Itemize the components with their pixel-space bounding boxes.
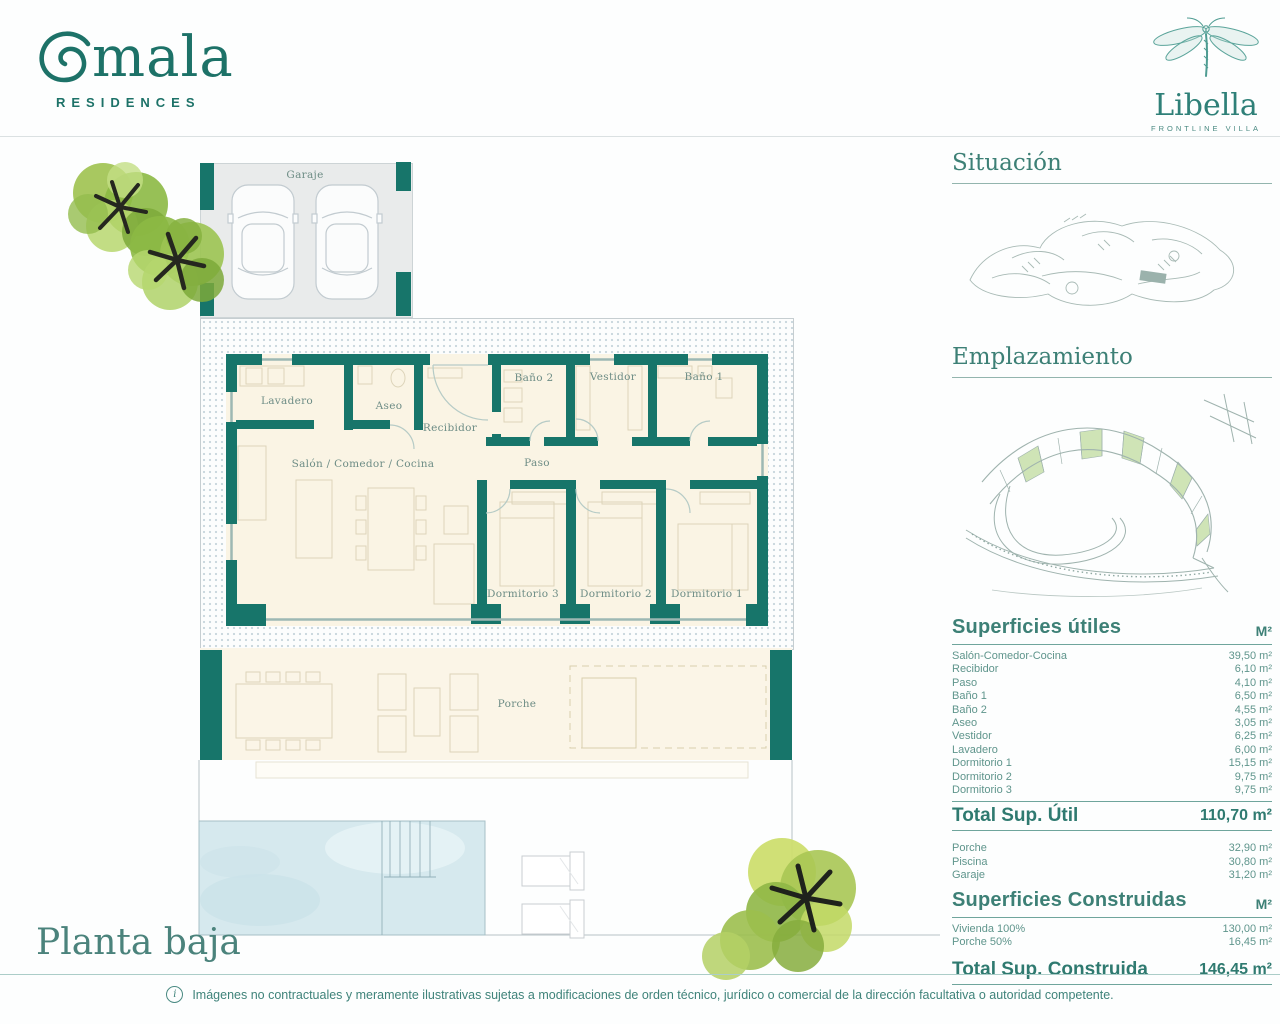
table-row: Salón-Comedor-Cocina39,50 m² — [952, 650, 1272, 663]
emplazamiento-map — [952, 382, 1272, 604]
superficies-anexas-rows: Porche32,90 m² Piscina30,80 m² Garaje31,… — [952, 837, 1272, 886]
superficies-utiles-header: Superficies útiles M² — [952, 616, 1272, 645]
room-label-dormitorio-2: Dormitorio 2 — [580, 588, 652, 600]
total-util-row: Total Sup. Útil 110,70 m² — [952, 801, 1272, 831]
table-row: Dormitorio 29,75 m² — [952, 771, 1272, 784]
table-row: Baño 16,50 m² — [952, 690, 1272, 703]
superficies-utiles-rows: Salón-Comedor-Cocina39,50 m² Recibidor6,… — [952, 645, 1272, 801]
plan-title: Planta baja — [36, 922, 241, 963]
omala-o-spiral-icon — [34, 24, 96, 91]
situacion-map — [952, 188, 1272, 338]
room-label-porche: Porche — [498, 698, 537, 710]
info-icon: i — [166, 986, 183, 1003]
garage-area — [200, 163, 413, 318]
footer-divider — [0, 974, 1280, 975]
table-row: Dormitorio 39,75 m² — [952, 784, 1272, 797]
superficies-utiles-unit: M² — [1256, 623, 1272, 639]
room-label-garaje: Garaje — [286, 169, 323, 181]
villa-subtitle: FRONTLINE VILLA — [1128, 124, 1280, 133]
table-row: Aseo3,05 m² — [952, 717, 1272, 730]
brochure-page: { "brand": {"name": "Omala", "name_rest"… — [0, 0, 1280, 1024]
table-row: Porche32,90 m² — [952, 842, 1272, 855]
pool — [199, 821, 485, 935]
header-divider — [0, 136, 1280, 137]
table-row: Dormitorio 115,15 m² — [952, 757, 1272, 770]
room-label-bano-1: Baño 1 — [685, 371, 724, 383]
room-label-vestidor: Vestidor — [590, 371, 636, 383]
table-row: Vivienda 100%130,00 m² — [952, 923, 1272, 936]
room-label-recibidor: Recibidor — [423, 422, 477, 434]
libella-logo: Libella FRONTLINE VILLA — [1128, 8, 1280, 133]
brand-residences: RESIDENCES — [56, 95, 234, 110]
table-row: Recibidor6,10 m² — [952, 663, 1272, 676]
table-row: Paso4,10 m² — [952, 677, 1272, 690]
superficies-construidas-rows: Vivienda 100%130,00 m² Porche 50%16,45 m… — [952, 918, 1272, 954]
table-row: Lavadero6,00 m² — [952, 744, 1272, 757]
situacion-heading: Situación — [952, 150, 1272, 184]
disclaimer: i Imágenes no contractuales y meramente … — [0, 986, 1280, 1003]
room-label-bano-2: Baño 2 — [515, 372, 554, 384]
superficies-construidas-title: Superficies Construidas — [952, 889, 1187, 912]
disclaimer-text: Imágenes no contractuales y meramente il… — [192, 988, 1113, 1002]
table-row: Vestidor6,25 m² — [952, 730, 1272, 743]
room-label-aseo: Aseo — [376, 400, 403, 412]
superficies-utiles-title: Superficies útiles — [952, 616, 1121, 639]
table-row: Porche 50%16,45 m² — [952, 936, 1272, 949]
room-label-salon: Salón / Comedor / Cocina — [292, 458, 435, 470]
tree-bottom-right — [702, 838, 856, 980]
table-row: Garaje31,20 m² — [952, 869, 1272, 882]
table-row: Baño 24,55 m² — [952, 704, 1272, 717]
omala-logo: mala RESIDENCES — [34, 24, 234, 110]
table-row: Piscina30,80 m² — [952, 856, 1272, 869]
brand-name: mala — [92, 25, 234, 90]
porch-area — [200, 648, 792, 760]
total-construida-row: Total Sup. Construida 146,45 m² — [952, 954, 1272, 985]
room-label-dormitorio-1: Dormitorio 1 — [671, 588, 743, 600]
room-label-lavadero: Lavadero — [261, 395, 313, 407]
right-panel: Situación Emplazamiento — [952, 150, 1272, 985]
sun-loungers — [522, 852, 584, 938]
superficies-construidas-unit: M² — [1256, 896, 1272, 912]
emplazamiento-heading: Emplazamiento — [952, 344, 1272, 378]
superficies-construidas-header: Superficies Construidas M² — [952, 889, 1272, 918]
room-label-dormitorio-3: Dormitorio 3 — [487, 588, 559, 600]
villa-name: Libella — [1128, 91, 1280, 121]
room-label-paso: Paso — [524, 457, 550, 469]
